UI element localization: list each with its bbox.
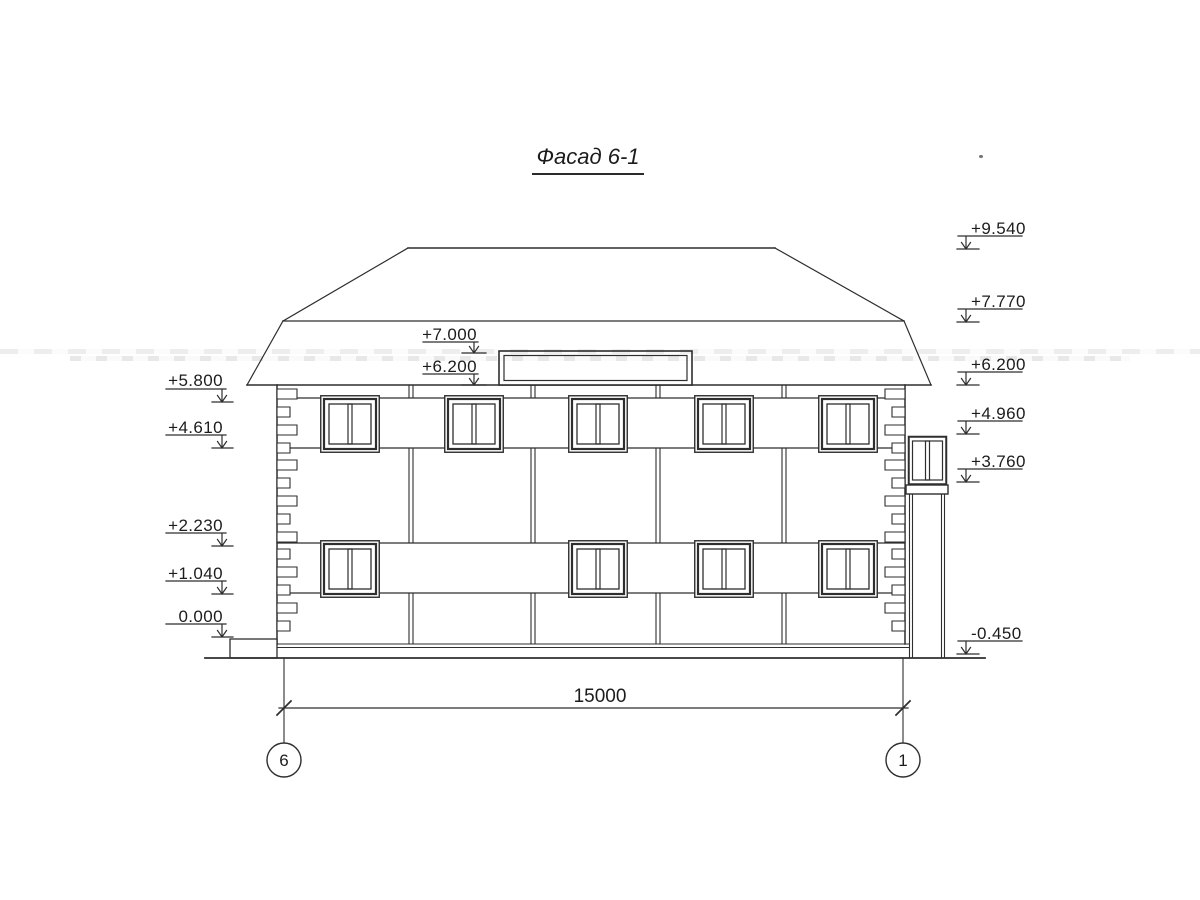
elevation-label-left-2230: +2.230 — [161, 517, 223, 534]
window — [695, 396, 754, 453]
facade-linework — [0, 0, 1200, 900]
window — [819, 396, 878, 453]
elevation-label-left-4610: +4.610 — [161, 419, 223, 436]
window — [321, 541, 380, 598]
window — [569, 541, 628, 598]
elevation-label-right-9540: +9.540 — [971, 220, 1033, 237]
elevation-label-right-3760: +3.760 — [971, 453, 1033, 470]
quoins-right — [885, 389, 905, 631]
windows-lower-row — [321, 541, 878, 598]
window — [695, 541, 754, 598]
elevation-label-right-7770: +7.770 — [971, 293, 1033, 310]
elevation-label-right-0450: -0.450 — [971, 625, 1033, 642]
elevation-label-right-4960: +4.960 — [971, 405, 1033, 422]
scan-speck — [979, 155, 983, 158]
window — [819, 541, 878, 598]
elevation-label-mid-6200: +6.200 — [415, 358, 477, 375]
quoins-left — [277, 389, 297, 631]
drawing-title: Фасад 6-1 — [532, 144, 644, 175]
windows-upper-row — [321, 396, 878, 453]
axis-number-right: 1 — [891, 751, 915, 771]
elevation-label-left-5800: +5.800 — [161, 372, 223, 389]
elevation-label-mid-7000: +7.000 — [415, 326, 477, 343]
window — [321, 396, 380, 453]
vent-shaft — [906, 437, 948, 657]
elevation-mark — [166, 389, 233, 402]
window — [569, 396, 628, 453]
dimension-label: 15000 — [560, 686, 640, 708]
elevation-label-right-6200: +6.200 — [971, 356, 1033, 373]
elevation-label-left-1040: +1.040 — [161, 565, 223, 582]
signboard — [499, 351, 692, 385]
axis-number-left: 6 — [272, 751, 296, 771]
dimension-line — [267, 658, 920, 777]
facade-drawing-sheet: Фасад 6-1 +5.800 +4.610 +2.230 +1.040 0.… — [0, 0, 1200, 900]
elevation-label-left-0000: 0.000 — [161, 608, 223, 625]
window — [445, 396, 504, 453]
plinth — [230, 639, 909, 658]
